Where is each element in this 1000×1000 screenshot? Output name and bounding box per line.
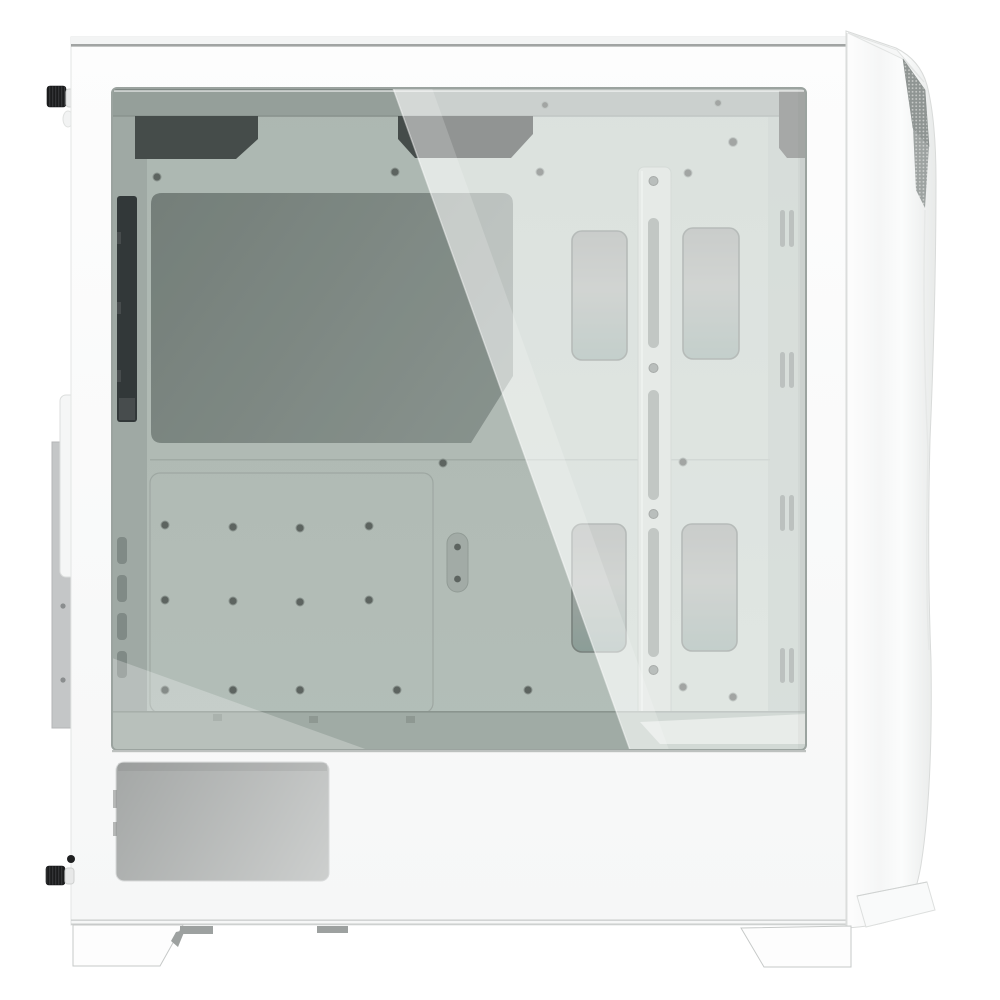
foot-clip [180, 926, 213, 934]
top-edge-line [71, 44, 850, 47]
foot-clip [317, 926, 348, 933]
glass-top-glint [114, 90, 804, 92]
thumbscrew-knob [46, 866, 65, 885]
top-surface-sliver [71, 37, 848, 44]
thumbscrew-knob [47, 86, 66, 107]
front-panel [846, 31, 936, 928]
rear-bracket-screw [60, 603, 65, 608]
rear-pin [67, 855, 75, 863]
rear-bracket-screw [60, 677, 65, 682]
psu-vent-window [116, 762, 329, 881]
shroud-top-shadow [112, 750, 806, 752]
pc-case-illustration [0, 0, 1000, 1000]
bottom-edge-line [71, 920, 848, 921]
bottom-edge-line-2 [71, 924, 848, 925]
glass-side-panel [112, 88, 806, 752]
psu-vent-inner-shadow [118, 763, 327, 771]
interior-through-glass [112, 88, 806, 752]
product-photo-pc-case [0, 0, 1000, 1000]
thumbscrew-washer [65, 868, 74, 884]
